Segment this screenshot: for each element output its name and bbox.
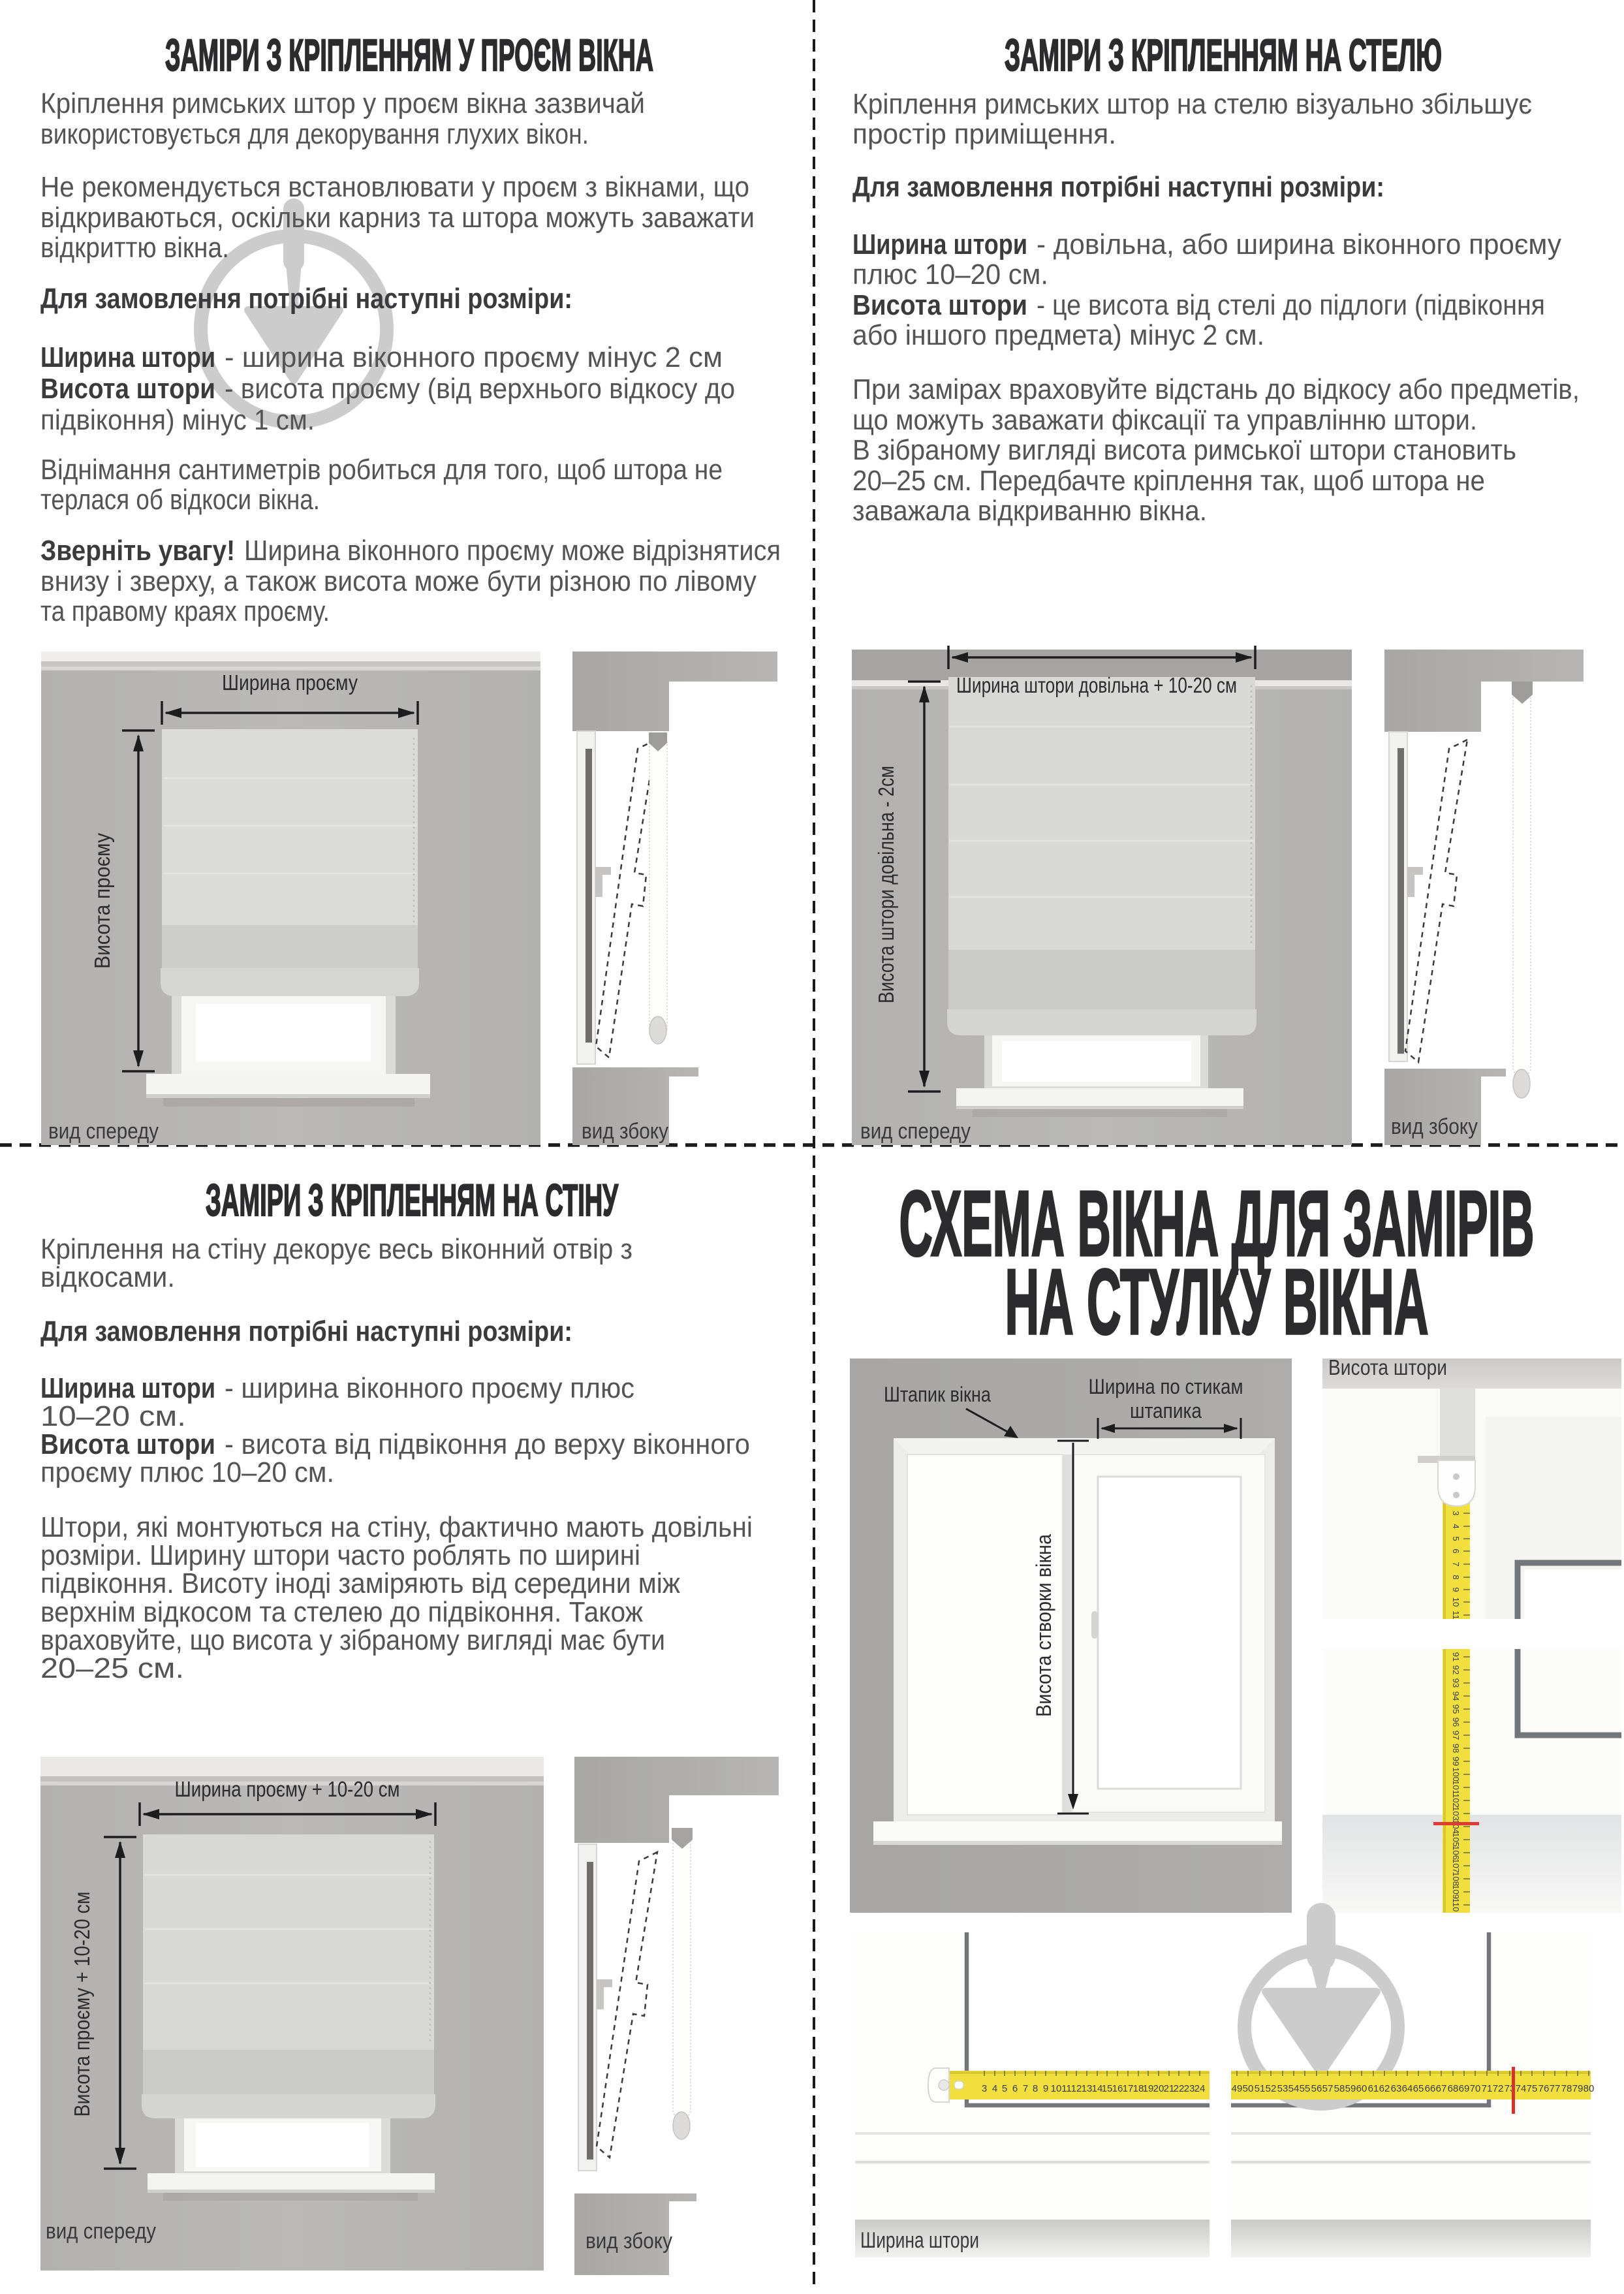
svg-text:10–20 см.: 10–20 см. <box>40 1400 186 1432</box>
svg-text:НА СТУЛКУ ВІКНА: НА СТУЛКУ ВІКНА <box>1005 1250 1429 1354</box>
svg-text:6: 6 <box>1451 1548 1461 1553</box>
svg-text:20: 20 <box>1153 2083 1164 2094</box>
svg-text:Ширина штори: Ширина штори <box>40 1372 215 1404</box>
svg-text:75: 75 <box>1527 2083 1538 2094</box>
svg-text:13: 13 <box>1082 2083 1093 2094</box>
svg-text:- довільна, або ширина віконно: - довільна, або ширина віконного проєму <box>1037 228 1561 260</box>
svg-text:9: 9 <box>1451 1587 1461 1592</box>
svg-text:91: 91 <box>1451 1652 1461 1661</box>
svg-text:проєму плюс 10–20 см.: проєму плюс 10–20 см. <box>40 1456 334 1488</box>
svg-text:5: 5 <box>1451 1536 1461 1541</box>
svg-text:підвіконня) мінус 1 см.: підвіконня) мінус 1 см. <box>40 404 315 436</box>
svg-text:105: 105 <box>1451 1832 1461 1847</box>
svg-text:15: 15 <box>1102 2083 1113 2094</box>
svg-text:терлася об відкоси вікна.: терлася об відкоси вікна. <box>40 484 320 516</box>
svg-text:Висота створки вікна: Висота створки вікна <box>1032 1534 1055 1717</box>
svg-text:24: 24 <box>1195 2083 1206 2094</box>
svg-text:95: 95 <box>1451 1705 1461 1714</box>
svg-text:При замірах враховуйте відстан: При замірах враховуйте відстань до відко… <box>852 373 1580 405</box>
svg-text:60: 60 <box>1356 2083 1367 2094</box>
svg-text:103: 103 <box>1451 1806 1461 1821</box>
svg-text:вид спереду: вид спереду <box>860 1119 971 1144</box>
svg-text:- висота від підвіконня до вер: - висота від підвіконня до верху віконно… <box>225 1428 750 1460</box>
svg-text:- ширина віконного проєму міну: - ширина віконного проєму мінус 2 см <box>225 341 723 373</box>
svg-text:94: 94 <box>1451 1691 1461 1701</box>
svg-text:Штори, які монтуються на стіну: Штори, які монтуються на стіну, фактично… <box>40 1511 753 1543</box>
svg-text:верхнім відкосом та стелею до: верхнім відкосом та стелею до підвіконня… <box>40 1596 644 1628</box>
svg-text:16: 16 <box>1112 2083 1123 2094</box>
svg-text:- ширина віконного проєму плюс: - ширина віконного проєму плюс <box>225 1372 634 1404</box>
svg-text:12: 12 <box>1071 2083 1082 2094</box>
svg-text:7: 7 <box>1023 2083 1028 2094</box>
svg-text:5: 5 <box>1002 2083 1007 2094</box>
svg-text:розміри. Ширину штори часто ро: розміри. Ширину штори часто роблять по ш… <box>40 1539 640 1571</box>
svg-text:98: 98 <box>1451 1744 1461 1753</box>
svg-text:63: 63 <box>1391 2083 1402 2094</box>
svg-text:Для замовлення потрібні наступ: Для замовлення потрібні наступні розміри… <box>40 283 572 315</box>
svg-text:80: 80 <box>1584 2083 1595 2094</box>
svg-text:плюс 10–20 см.: плюс 10–20 см. <box>852 259 1048 291</box>
svg-text:8: 8 <box>1451 1575 1461 1579</box>
svg-text:107: 107 <box>1451 1859 1461 1873</box>
svg-text:53: 53 <box>1277 2083 1288 2094</box>
svg-text:Висота проєму + 10-20 см: Висота проєму + 10-20 см <box>70 1892 94 2117</box>
svg-text:23: 23 <box>1184 2083 1195 2094</box>
svg-text:Кріплення на стіну декорує вес: Кріплення на стіну декорує весь віконний… <box>40 1233 632 1265</box>
svg-text:108: 108 <box>1451 1872 1461 1886</box>
svg-text:54: 54 <box>1288 2083 1300 2094</box>
svg-text:59: 59 <box>1345 2083 1356 2094</box>
svg-text:79: 79 <box>1572 2083 1584 2094</box>
svg-text:20–25 см.: 20–25 см. <box>40 1652 184 1684</box>
svg-text:або іншого предмета) мінус 2 с: або іншого предмета) мінус 2 см. <box>852 319 1264 351</box>
svg-text:що можуть заважати фіксації та: що можуть заважати фіксації та управлінн… <box>852 404 1477 436</box>
svg-text:Ширина штори довільна + 10-20: Ширина штори довільна + 10-20 см <box>956 673 1237 697</box>
svg-text:70: 70 <box>1470 2083 1481 2094</box>
svg-text:55: 55 <box>1300 2083 1311 2094</box>
svg-text:99: 99 <box>1451 1757 1461 1766</box>
svg-text:відкриваються, оскільки карниз: відкриваються, оскільки карниз та штора … <box>40 202 755 234</box>
svg-text:Штапик вікна: Штапик вікна <box>884 1383 991 1406</box>
svg-text:51: 51 <box>1255 2083 1266 2094</box>
svg-text:ЗАМІРИ З КРІПЛЕННЯМ У ПРОЄМ ВІ: ЗАМІРИ З КРІПЛЕННЯМ У ПРОЄМ ВІКНА <box>165 30 653 80</box>
svg-text:- це висота від стелі до підло: - це висота від стелі до підлоги (підвік… <box>1037 289 1545 321</box>
svg-text:102: 102 <box>1451 1793 1461 1808</box>
svg-text:64: 64 <box>1402 2083 1413 2094</box>
svg-text:3: 3 <box>1451 1511 1461 1515</box>
svg-text:Ширина проєму + 10-20 см: Ширина проєму + 10-20 см <box>175 1777 400 1801</box>
svg-text:50: 50 <box>1243 2083 1254 2094</box>
svg-text:Кріплення римських штор у проє: Кріплення римських штор у проєм вікна за… <box>40 87 645 119</box>
svg-text:Висота штори: Висота штори <box>40 373 215 405</box>
svg-text:93: 93 <box>1451 1678 1461 1688</box>
svg-text:92: 92 <box>1451 1665 1461 1674</box>
svg-text:використовується для декоруван: використовується для декорування глухих … <box>40 118 589 150</box>
svg-text:Висота проєму: Висота проєму <box>90 833 114 969</box>
svg-text:7: 7 <box>1451 1562 1461 1566</box>
svg-text:простір приміщення.: простір приміщення. <box>852 118 1116 150</box>
svg-text:враховуйте, що висота у зібран: враховуйте, що висота у зібраному вигляд… <box>40 1624 665 1656</box>
svg-text:106: 106 <box>1451 1846 1461 1860</box>
svg-text:78: 78 <box>1561 2083 1572 2094</box>
svg-text:відкриттю вікна.: відкриттю вікна. <box>40 232 229 264</box>
svg-text:заважала відкриванню вікна.: заважала відкриванню вікна. <box>852 495 1207 527</box>
svg-text:110: 110 <box>1451 1898 1461 1912</box>
svg-text:Висота штори довільна - 2см: Висота штори довільна - 2см <box>874 766 898 1003</box>
svg-text:62: 62 <box>1379 2083 1390 2094</box>
svg-text:відкосами.: відкосами. <box>40 1261 175 1293</box>
svg-text:68: 68 <box>1448 2083 1459 2094</box>
svg-text:67: 67 <box>1436 2083 1447 2094</box>
svg-text:19: 19 <box>1143 2083 1154 2094</box>
svg-text:8: 8 <box>1033 2083 1038 2094</box>
svg-text:Ширина штори: Ширина штори <box>40 341 215 373</box>
svg-text:74: 74 <box>1516 2083 1527 2094</box>
svg-text:11: 11 <box>1451 1611 1461 1620</box>
svg-text:17: 17 <box>1123 2083 1134 2094</box>
svg-text:Зверніть увагу!: Зверніть увагу! <box>40 535 235 567</box>
svg-text:Для замовлення потрібні наступ: Для замовлення потрібні наступні розміри… <box>40 1315 572 1347</box>
svg-text:Не рекомендується встановлюват: Не рекомендується встановлювати у проєм … <box>40 171 749 203</box>
svg-text:66: 66 <box>1425 2083 1436 2094</box>
svg-text:Висота штори: Висота штори <box>1328 1355 1447 1379</box>
svg-text:4: 4 <box>1451 1524 1461 1528</box>
svg-text:56: 56 <box>1311 2083 1322 2094</box>
svg-text:10: 10 <box>1451 1597 1461 1607</box>
svg-text:вид спереду: вид спереду <box>46 2219 156 2244</box>
svg-text:52: 52 <box>1266 2083 1277 2094</box>
svg-text:77: 77 <box>1550 2083 1561 2094</box>
svg-text:96: 96 <box>1451 1718 1461 1727</box>
svg-text:Висота штори: Висота штори <box>40 1428 215 1460</box>
svg-text:58: 58 <box>1334 2083 1345 2094</box>
svg-text:Ширина віконного проєму може в: Ширина віконного проєму може відрізнятис… <box>244 535 781 567</box>
svg-text:штапика: штапика <box>1130 1399 1202 1422</box>
svg-text:76: 76 <box>1538 2083 1550 2094</box>
svg-text:вид збоку: вид збоку <box>1391 1114 1478 1139</box>
svg-text:Ширина штори: Ширина штори <box>860 2228 979 2253</box>
svg-text:11: 11 <box>1061 2083 1072 2094</box>
svg-text:57: 57 <box>1322 2083 1334 2094</box>
svg-text:Ширина проєму: Ширина проєму <box>222 670 358 695</box>
svg-text:3: 3 <box>982 2083 987 2094</box>
svg-text:вид збоку: вид збоку <box>586 2229 672 2254</box>
svg-text:Ширина по стикам: Ширина по стикам <box>1089 1375 1243 1398</box>
svg-text:104: 104 <box>1451 1819 1461 1834</box>
svg-text:20–25 см. Передбачте кріплення: 20–25 см. Передбачте кріплення так, щоб … <box>852 465 1485 497</box>
svg-text:ЗАМІРИ З КРІПЛЕННЯМ НА СТІНУ: ЗАМІРИ З КРІПЛЕННЯМ НА СТІНУ <box>206 1175 619 1225</box>
svg-text:Для замовлення потрібні наступ: Для замовлення потрібні наступні розміри… <box>852 171 1384 203</box>
svg-text:49: 49 <box>1232 2083 1243 2094</box>
svg-text:10: 10 <box>1051 2083 1062 2094</box>
svg-text:Віднімання сантиметрів робитьс: Віднімання сантиметрів робиться для того… <box>40 454 723 486</box>
svg-text:Кріплення римських штор на сте: Кріплення римських штор на стелю візуаль… <box>852 88 1532 120</box>
svg-text:97: 97 <box>1451 1731 1461 1740</box>
svg-text:та правому краях проєму.: та правому краях проєму. <box>40 595 330 627</box>
svg-text:вид збоку: вид збоку <box>582 1119 668 1144</box>
svg-text:109: 109 <box>1451 1885 1461 1899</box>
svg-text:Ширина штори: Ширина штори <box>852 228 1027 260</box>
svg-text:вид спереду: вид спереду <box>48 1119 159 1144</box>
svg-text:Висота штори: Висота штори <box>852 289 1027 321</box>
svg-text:61: 61 <box>1368 2083 1379 2094</box>
svg-text:101: 101 <box>1451 1780 1461 1795</box>
svg-text:ЗАМІРИ З КРІПЛЕННЯМ НА СТЕЛЮ: ЗАМІРИ З КРІПЛЕННЯМ НА СТЕЛЮ <box>1005 30 1442 80</box>
svg-text:внизу і зверху, а також висота: внизу і зверху, а також висота може бути… <box>40 565 757 597</box>
svg-text:4: 4 <box>992 2083 997 2094</box>
svg-text:69: 69 <box>1459 2083 1470 2094</box>
svg-text:9: 9 <box>1043 2083 1048 2094</box>
svg-text:65: 65 <box>1413 2083 1424 2094</box>
svg-text:підвіконня. Висоту іноді замір: підвіконня. Висоту іноді заміряють від с… <box>40 1567 681 1599</box>
svg-text:6: 6 <box>1012 2083 1018 2094</box>
svg-text:71: 71 <box>1482 2083 1493 2094</box>
svg-text:72: 72 <box>1493 2083 1504 2094</box>
svg-text:В зібраному вигляді висота рим: В зібраному вигляді висота римської штор… <box>852 434 1516 466</box>
svg-text:22: 22 <box>1174 2083 1185 2094</box>
svg-text:- висота проєму (від верхнього: - висота проєму (від верхнього відкосу д… <box>225 373 735 405</box>
svg-text:100: 100 <box>1451 1767 1461 1782</box>
